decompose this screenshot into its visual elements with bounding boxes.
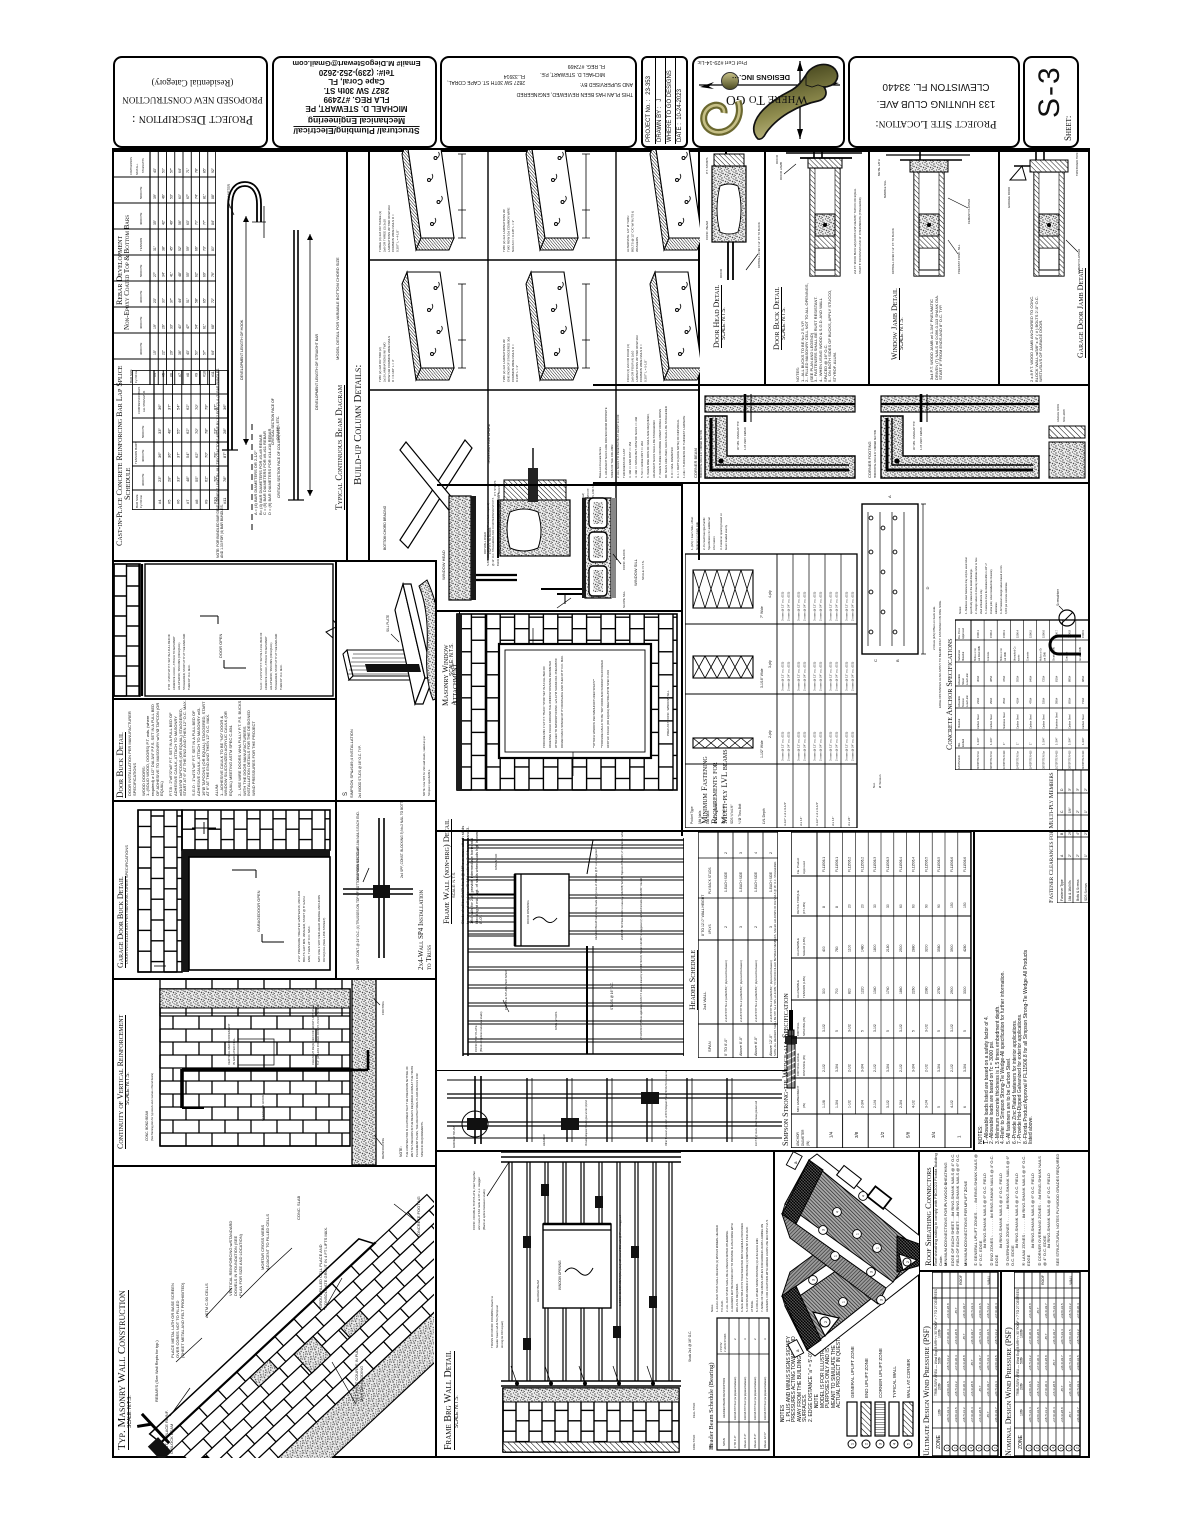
svg-text:Carbon Steel: Carbon Steel xyxy=(1016,714,1019,729)
svg-text:3: 3 xyxy=(739,852,743,854)
svg-text:+19.8/-32.5: +19.8/-32.5 xyxy=(1076,1355,1080,1371)
svg-text:THREE (3) 2x6 OR THREE (3): THREE (3) 2x6 OR THREE (3) xyxy=(378,211,382,252)
svg-text:4: 4 xyxy=(862,1195,866,1197)
svg-text:+16.3/-28.8: +16.3/-28.8 xyxy=(1028,1303,1032,1319)
svg-text:35": 35" xyxy=(153,219,157,225)
svg-text:76": 76" xyxy=(211,271,215,277)
svg-text:3000 PSI: 3000 PSI xyxy=(139,290,143,303)
svg-text:3: 3 xyxy=(878,1442,883,1445)
svg-text:4: 4 xyxy=(754,852,758,854)
svg-text:5: 5 xyxy=(860,1030,864,1032)
svg-text:2-3/4: 2-3/4 xyxy=(860,1100,864,1108)
svg-text:CONC. BOND BEAM: CONC. BOND BEAM xyxy=(145,1110,149,1141)
svg-text:2 rows @ 24" o.c. (ES): 2 rows @ 24" o.c. (ES) xyxy=(787,732,791,761)
svg-text:Min.: Min. xyxy=(957,742,961,747)
svg-text:+36.4/-39.7: +36.4/-39.7 xyxy=(1044,1303,1048,1319)
svg-text:NAILS D = 0.148" L = 3": NAILS D = 0.148" L = 3" xyxy=(511,220,515,252)
svg-text:3.-Fastener spacing based on: 3.-Fastener spacing based on xyxy=(719,513,723,550)
svg-text:42": 42" xyxy=(161,219,165,225)
svg-text:0.148" L = 3": 0.148" L = 3" xyxy=(515,365,519,382)
svg-text:50ft²: 50ft² xyxy=(1020,1356,1024,1364)
svg-text:START 8" FROM ENDS AND 12" INT: START 8" FROM ENDS AND 12" INTERMEDIATE … xyxy=(858,197,862,274)
svg-text:+16.3/-28.8: +16.3/-28.8 xyxy=(970,1381,974,1397)
svg-text:64": 64" xyxy=(211,349,215,355)
svg-text:3-1/2: 3-1/2 xyxy=(950,1024,954,1032)
svg-text:-45.7: -45.7 xyxy=(1068,1411,1072,1418)
svg-text:5: 5 xyxy=(886,1030,890,1032)
svg-text:GIRDER TRUSS: GIRDER TRUSS xyxy=(452,1125,456,1148)
svg-text:15": 15" xyxy=(153,349,157,355)
svg-text:+16.3/-28.8: +16.3/-28.8 xyxy=(962,1355,966,1371)
svg-text:**ATTACH WINDOW PER MANUFACTUR: **ATTACH WINDOW PER MANUFACTURER SPECS** xyxy=(592,678,596,748)
svg-text:a: a xyxy=(795,1349,800,1352)
svg-text:#9: #9 xyxy=(194,373,198,377)
svg-text:820: 820 xyxy=(848,988,852,994)
svg-text:2x6/2x8 SYP No.2 (w/ plywood b: 2x6/2x8 SYP No.2 (w/ plywood between) xyxy=(734,1377,737,1420)
svg-text:mortar joint, when installed i: mortar joint, when installed into masonr… xyxy=(990,569,993,614)
svg-text:#10: #10 xyxy=(203,371,207,377)
svg-text:Notes:: Notes: xyxy=(958,606,962,614)
svg-text:TYPICAL WALL: TYPICAL WALL xyxy=(892,1366,897,1398)
svg-text:1-1/8: 1-1/8 xyxy=(822,1100,826,1108)
svg-text:+17.9/-30.4: +17.9/-30.4 xyxy=(1076,1303,1080,1319)
svg-text:+16.3/-28.8: +16.3/-28.8 xyxy=(1044,1355,1048,1371)
svg-text:20: 20 xyxy=(848,904,852,908)
svg-text:80": 80" xyxy=(211,245,215,251)
svg-text:30" MIN. OVERLAP TYP.: 30" MIN. OVERLAP TYP. xyxy=(736,421,740,450)
svg-text:+18.7/-31.2: +18.7/-31.2 xyxy=(1076,1329,1080,1345)
svg-text:77": 77" xyxy=(203,219,207,225)
svg-text:# JACK STUDS: # JACK STUDS xyxy=(723,1333,727,1352)
svg-text:57": 57" xyxy=(170,167,174,173)
svg-text:48": 48" xyxy=(178,271,182,277)
svg-text:31": 31" xyxy=(153,245,157,251)
svg-text:55": 55" xyxy=(194,476,199,482)
svg-text:150: 150 xyxy=(963,902,967,908)
svg-text:DOOR JAMB: DOOR JAMB xyxy=(779,162,783,180)
svg-text:1-#5 VERT. REBAR: 1-#5 VERT. REBAR xyxy=(919,427,923,450)
svg-text:2: 2 xyxy=(724,852,728,854)
svg-text:COMMON WIRE NAILS D =: COMMON WIRE NAILS D = xyxy=(639,344,643,382)
svg-text:Carbon Steel: Carbon Steel xyxy=(1029,714,1032,729)
svg-text:66": 66" xyxy=(194,245,198,251)
svg-text:1220: 1220 xyxy=(860,986,864,994)
svg-text:3: 3 xyxy=(812,1279,816,1281)
svg-text:2": 2" xyxy=(1076,854,1080,857)
svg-text:2: 2 xyxy=(724,926,728,928)
svg-text:5: 5 xyxy=(906,1442,911,1445)
svg-text:37": 37" xyxy=(170,297,174,303)
svg-text:1/2: 1/2 xyxy=(880,1131,885,1138)
svg-text:46": 46" xyxy=(161,193,165,199)
svg-text:23": 23" xyxy=(153,297,157,303)
svg-text:#7: #7 xyxy=(178,373,182,377)
svg-text:84": 84" xyxy=(211,219,215,225)
svg-text:1: 1 xyxy=(842,1301,846,1303)
svg-text:2x4 SPF CONT. @ 24" O.C. (4) T: 2x4 SPF CONT. @ 24" O.C. (4) TRUSSES ON … xyxy=(356,811,360,970)
svg-text:3 rows @ 12" o.c. (ES): 3 rows @ 12" o.c. (ES) xyxy=(813,662,817,691)
svg-text:Load Limit: Load Limit xyxy=(965,673,969,685)
svg-text:36": 36" xyxy=(178,349,182,355)
svg-text:A: A xyxy=(1060,854,1064,857)
svg-text:2-1/2: 2-1/2 xyxy=(899,1064,903,1072)
svg-text:52": 52" xyxy=(178,245,182,251)
svg-text:(IN): (IN) xyxy=(806,1141,810,1146)
svg-text:1506.1: 1506.1 xyxy=(976,630,980,638)
svg-text:150: 150 xyxy=(950,902,954,908)
svg-text:3 rows @ 12" o.c. (ES): 3 rows @ 12" o.c. (ES) xyxy=(829,662,833,691)
svg-text:71": 71" xyxy=(186,167,190,173)
svg-text:3: 3 xyxy=(1043,1447,1047,1449)
svg-text:ATTACHED TO MASONRY/CONC. w/3-: ATTACHED TO MASONRY/CONC. w/3-16"Ø SHANK… xyxy=(554,658,558,748)
svg-text:information: information xyxy=(712,536,716,550)
svg-text:+20.7/-33.4: +20.7/-33.4 xyxy=(994,1381,998,1397)
svg-text:1-EACH SIDE: 1-EACH SIDE xyxy=(754,872,758,892)
svg-text:3: 3 xyxy=(763,1338,767,1340)
svg-text:2: 2 xyxy=(906,1261,910,1263)
svg-text:2-1/2: 2-1/2 xyxy=(848,1064,852,1072)
svg-text:2x8 OR FOUR (4) 2x10: 2x8 OR FOUR (4) 2x10 xyxy=(630,350,634,382)
svg-text:DESIGNS INC.···: DESIGNS INC.··· xyxy=(732,73,790,82)
svg-text:header beam w/H2.5A (Simpson: header beam w/H2.5A (Simpson xyxy=(495,1304,499,1348)
svg-text:STRENGTHS: STRENGTHS xyxy=(142,158,145,173)
svg-text:ADJACENT TO FILLED CELLS: ADJACENT TO FILLED CELLS xyxy=(265,1214,270,1270)
svg-text:3000 PSI: 3000 PSI xyxy=(139,342,143,355)
svg-text:MAY USE 1"x06" RED-HEAD WEDGE: MAY USE 1"x06" RED-HEAD WEDGE ANCHORS xyxy=(317,895,321,962)
svg-text:640#: 640# xyxy=(1028,675,1032,682)
svg-text:70": 70" xyxy=(194,219,198,225)
svg-text:2": 2" xyxy=(1068,854,1072,857)
svg-text:1-3/4": 1-3/4" xyxy=(1055,738,1059,745)
svg-text:3 rows @ 12" o.c. (ES): 3 rows @ 12" o.c. (ES) xyxy=(845,732,849,761)
svg-text:(See framing plan for typ size: (See framing plan for typ size/s and cou… xyxy=(150,1073,154,1141)
svg-text:COMMON WIRE NAILS D =: COMMON WIRE NAILS D = xyxy=(391,214,395,252)
svg-text:+18.7/-31.2: +18.7/-31.2 xyxy=(1028,1355,1032,1371)
svg-text:+20.7/-33.4: +20.7/-33.4 xyxy=(1076,1381,1080,1397)
svg-text:+16.3/-28.8: +16.3/-28.8 xyxy=(954,1329,958,1345)
svg-text:ADHESIVE CAULK, ATTACH TO MASO: ADHESIVE CAULK, ATTACH TO MASONRY xyxy=(264,636,268,690)
svg-text:OR EQUAL (SEE LINK STREET): OR EQUAL (SEE LINK STREET) xyxy=(322,918,326,962)
svg-text:60: 60 xyxy=(899,904,903,908)
svg-text:710#: 710# xyxy=(1081,697,1085,704)
svg-text:+18.7/-31.2: +18.7/-31.2 xyxy=(994,1329,998,1345)
svg-text:FL11506.5: FL11506.5 xyxy=(937,857,941,872)
svg-text:4: 4 xyxy=(969,1447,973,1449)
svg-text:30: 30 xyxy=(873,904,877,908)
svg-text:+18.7/-31.2: +18.7/-31.2 xyxy=(954,1381,958,1397)
svg-text:Uncracked Co: Uncracked Co xyxy=(1013,646,1016,661)
svg-text:AT BASE.: AT BASE. xyxy=(750,1300,754,1312)
svg-text:SDS ¼"x4-½": SDS ¼"x4-½" xyxy=(730,805,734,824)
svg-text:2x8 OR THREE (3) 2x10: 2x8 OR THREE (3) 2x10 xyxy=(382,219,386,252)
svg-text:Fastener Type: Fastener Type xyxy=(1060,879,1064,901)
svg-text:2: 2 xyxy=(753,1338,757,1340)
svg-text:8: 8 xyxy=(822,906,826,908)
svg-text:END UPLIFT ZONE: END UPLIFT ZONE xyxy=(864,1358,869,1398)
svg-text:COMMON WIRE NAILS D =: COMMON WIRE NAILS D = xyxy=(511,344,515,382)
svg-text:+18.7/-31.2: +18.7/-31.2 xyxy=(962,1407,966,1423)
svg-text:2: 2 xyxy=(1075,1447,1079,1449)
svg-text:DRIVEN NAILS SPACED AT 8" FROM: DRIVEN NAILS SPACED AT 8" FROM EACH END … xyxy=(560,655,564,748)
svg-text:LAMINATIONS W/ TWO ROW 30d: LAMINATIONS W/ TWO ROW 30d xyxy=(635,335,639,382)
svg-text:STAGGERED, START AT 6" AT THE: STAGGERED, START AT 6" AT THE END AND xyxy=(182,634,186,690)
svg-text:3-1/2: 3-1/2 xyxy=(848,1024,852,1032)
svg-text:3-1/2: 3-1/2 xyxy=(822,1024,826,1032)
svg-text:5: 5 xyxy=(835,1030,839,1032)
svg-text:410#: 410# xyxy=(1015,697,1019,704)
svg-text:60: 60 xyxy=(912,904,916,908)
svg-text:3580: 3580 xyxy=(937,944,941,952)
svg-text:HORIZONTAL SPLICE AT CORNER SE: HORIZONTAL SPLICE AT CORNER SECTION xyxy=(874,430,877,478)
svg-text:2780: 2780 xyxy=(937,986,941,994)
svg-text:54": 54" xyxy=(176,404,181,410)
svg-text:2 Rows (ES) Offset on back sid: 2 Rows (ES) Offset on back side. xyxy=(932,606,936,650)
svg-text:+18.7/-31.2: +18.7/-31.2 xyxy=(1068,1303,1072,1319)
svg-text:2-2x8 SYP No.2 (w/&#189;" plyw: 2-2x8 SYP No.2 (w/&#189;" plywood betwee… xyxy=(739,960,743,1022)
svg-text:S.G.D : 1"x4"/1"x6" P.T. SET I: S.G.D : 1"x4"/1"x6" P.T. SET IN A FULL B… xyxy=(259,632,263,690)
svg-text:out CMU: out CMU xyxy=(1004,652,1007,661)
svg-text:#9: #9 xyxy=(203,499,208,504)
svg-text:KING STUDS: KING STUDS xyxy=(554,1012,558,1030)
svg-text:STUDS @ 16" O.C.: STUDS @ 16" O.C. xyxy=(610,982,614,1010)
svg-text:THE CONTRACTOR IS CAUTIONED TH: THE CONTRACTOR IS CAUTIONED THAT THE PRE… xyxy=(405,1066,409,1157)
svg-text:8: 8 xyxy=(835,906,839,908)
svg-text:MARBLE SILL: MARBLE SILL xyxy=(883,180,887,198)
svg-text:fasteners on back side: fasteners on back side xyxy=(695,522,699,550)
svg-text:SPAN: SPAN xyxy=(707,1041,712,1052)
svg-text:ROW 10d COMMON WIRE NAILS: ROW 10d COMMON WIRE NAILS xyxy=(387,336,391,382)
svg-text:2 rows @ 24" o.c. (ES): 2 rows @ 24" o.c. (ES) xyxy=(803,732,807,761)
svg-text:+19.8/-32.5: +19.8/-32.5 xyxy=(1036,1407,1040,1423)
svg-text:(Block all splices between stu: (Block all splices between studs) xyxy=(479,1012,483,1052)
svg-text:3 rows @ 12" o.c. (ES): 3 rows @ 12" o.c. (ES) xyxy=(829,592,833,621)
svg-text:CRITICAL: CRITICAL xyxy=(796,1022,800,1036)
svg-text:BOTTOM CHORD BRACING: BOTTOM CHORD BRACING xyxy=(383,505,387,550)
svg-text:3/8: 3/8 xyxy=(854,1131,859,1138)
svg-text:3-1/2" ≤ d ≤ 9-1/4": 3-1/2" ≤ d ≤ 9-1/4" xyxy=(783,802,787,826)
svg-text:16d Nails: 16d Nails xyxy=(706,810,710,824)
svg-text:FOUR (4) 2x6 OR FOUR (4): FOUR (4) 2x6 OR FOUR (4) xyxy=(626,344,630,382)
svg-text:33": 33" xyxy=(157,428,162,434)
svg-text:CEMENT PLASTER: CEMENT PLASTER xyxy=(1077,249,1081,274)
svg-text:-45.7: -45.7 xyxy=(962,1333,966,1340)
svg-text:WALL: WALL xyxy=(1069,1275,1073,1284)
svg-text:2 rows @ 24" o.c. (ES): 2 rows @ 24" o.c. (ES) xyxy=(787,662,791,691)
svg-text:MIN. EMBEDMENT: MIN. EMBEDMENT xyxy=(796,1085,800,1112)
svg-text:+17.9/-30.4: +17.9/-30.4 xyxy=(962,1381,966,1397)
svg-text:2x10 LAMINATIONS W/ TWO: 2x10 LAMINATIONS W/ TWO xyxy=(382,342,386,382)
svg-text:3 rows @ 12" o.c. (ES): 3 rows @ 12" o.c. (ES) xyxy=(781,732,785,761)
svg-text:5000 PSI: 5000 PSI xyxy=(141,425,145,438)
svg-text:5000 PSI: 5000 PSI xyxy=(139,264,143,277)
svg-text:SILL PLATE: SILL PLATE xyxy=(386,615,390,632)
svg-text:39": 39" xyxy=(153,193,157,199)
svg-text:OF NAILS ARE USED, NAILS SHALL: OF NAILS ARE USED, NAILS SHALL BE STAGGE… xyxy=(664,406,668,478)
svg-text:2: 2 xyxy=(733,1338,737,1340)
svg-text:LAMINATIONS W/ TWO ROW 30d: LAMINATIONS W/ TWO ROW 30d xyxy=(387,205,391,252)
svg-text:CLEANOUT REQUIRED FOR GROUT LI: CLEANOUT REQUIRED FOR GROUT LIFTS OVER xyxy=(311,1004,315,1065)
svg-text:2-2x8 SYP No.2 (w/&#189;" plyw: 2-2x8 SYP No.2 (w/&#189;" plywood betwee… xyxy=(769,960,773,1022)
svg-text:2x6/2x8 SYP No.2 (w/ plywood b: 2x6/2x8 SYP No.2 (w/ plywood between) xyxy=(744,1377,747,1420)
svg-text:+17.9/-30.4: +17.9/-30.4 xyxy=(946,1329,950,1345)
svg-text:7" Wide: 7" Wide xyxy=(760,606,764,618)
svg-text:shell embedment only.: shell embedment only. xyxy=(980,589,983,614)
svg-text:2-1/2: 2-1/2 xyxy=(924,1064,928,1072)
svg-text:54": 54" xyxy=(185,452,190,458)
svg-text:¾"Ø Thru-Bolt: ¾"Ø Thru-Bolt xyxy=(738,804,742,824)
svg-text:N-5/8" CONCRETE SCREWS (1/4" m: N-5/8" CONCRETE SCREWS (1/4" min, hole r… xyxy=(486,503,490,566)
svg-text:50": 50" xyxy=(161,167,165,173)
svg-text:Stainless Steel: Stainless Steel xyxy=(1056,712,1059,729)
svg-text:+17.9/-30.4: +17.9/-30.4 xyxy=(994,1303,998,1319)
svg-text:4: 4 xyxy=(836,1211,840,1213)
svg-text:COMPRESSION: COMPRESSION xyxy=(130,157,133,175)
svg-text:3 rows @ 12" o.c. (ES): 3 rows @ 12" o.c. (ES) xyxy=(781,592,785,621)
svg-text:2x6/8/10 HEADER BEAM (See plan: 2x6/8/10 HEADER BEAM (See plan) w/2 rows… xyxy=(618,1215,622,1306)
svg-text:+16.3/-28.8: +16.3/-28.8 xyxy=(1052,1381,1056,1397)
svg-text:CELL STUD: CELL STUD xyxy=(692,1403,696,1418)
svg-text:3/4"ØTITEN 410: 3/4"ØTITEN 410 xyxy=(1082,750,1085,769)
svg-text:TRUSS BOTTOM CHORD: TRUSS BOTTOM CHORD xyxy=(487,423,491,464)
svg-text:0.207" L = 4-1/2": 0.207" L = 4-1/2" xyxy=(396,230,400,252)
svg-text:REBAR'S (See Wall Repts for ty: REBAR'S (See Wall Repts for typ.) xyxy=(154,1340,159,1402)
svg-text:2-3/4: 2-3/4 xyxy=(899,1100,903,1108)
svg-text:PLAN FOR SIZE AND LOCATION): PLAN FOR SIZE AND LOCATION) xyxy=(238,1233,243,1296)
svg-text:1-3/4: 1-3/4 xyxy=(835,1100,839,1108)
svg-text:55": 55" xyxy=(186,271,190,277)
svg-text:650#: 650# xyxy=(1068,697,1072,704)
svg-text:Prof Cert #29-14-Lic: Prof Cert #29-14-Lic xyxy=(697,59,747,65)
svg-text:2: 2 xyxy=(769,852,773,854)
svg-text:36": 36" xyxy=(157,452,162,458)
svg-text:3 rows @ 12" o.c. (ES): 3 rows @ 12" o.c. (ES) xyxy=(797,592,801,621)
svg-text:THICKNESS OF LAST: THICKNESS OF LAST xyxy=(622,448,626,478)
svg-text:4.-NAIL MULTIPLE PLYS TOGETHER: 4.-NAIL MULTIPLE PLYS TOGETHER PER NDS S… xyxy=(740,1222,744,1312)
svg-text:1/2"ØTITEN 410: 1/2"ØTITEN 410 xyxy=(1056,750,1059,769)
svg-text:62": 62" xyxy=(185,404,190,410)
svg-text:2: 2 xyxy=(823,1320,828,1323)
svg-text:1: 1 xyxy=(945,1447,949,1449)
svg-text:WINDOW HEAD: WINDOW HEAD xyxy=(441,550,446,580)
svg-text:4-ply: 4-ply xyxy=(768,590,772,598)
svg-text:Bolts & Screws: Bolts & Screws xyxy=(1076,879,1080,901)
svg-text:4000 PSI: 4000 PSI xyxy=(139,212,143,225)
svg-text:GARAGE DOOR: GARAGE DOOR xyxy=(1057,404,1060,422)
svg-text:-45.7: -45.7 xyxy=(970,1359,974,1366)
svg-text:Pocket Type: Pocket Type xyxy=(690,806,694,824)
svg-text:**PROVIDE CAULK TO BE "NO" DOO: **PROVIDE CAULK TO BE "NO" DOOR AND WIND… xyxy=(600,660,604,748)
svg-text:2-1/2: 2-1/2 xyxy=(822,1064,826,1072)
svg-text:3: 3 xyxy=(739,926,743,928)
svg-text:43": 43" xyxy=(186,349,190,355)
svg-text:Above 12'-0": Above 12'-0" xyxy=(763,1432,767,1448)
svg-text:Fy=60 ksi: Fy=60 ksi xyxy=(139,495,143,508)
svg-text:20: 20 xyxy=(860,904,864,908)
svg-text:1: 1 xyxy=(856,1233,860,1235)
svg-text:+36.4/-39.7: +36.4/-39.7 xyxy=(1068,1381,1072,1397)
svg-text:+19.8/-32.5: +19.8/-32.5 xyxy=(978,1303,982,1319)
svg-text:(FT-LBS): (FT-LBS) xyxy=(802,902,806,914)
svg-text:ANCHOR: ANCHOR xyxy=(796,1131,800,1146)
svg-text:67": 67" xyxy=(186,193,190,199)
svg-text:ASTM C-90 CELLS: ASTM C-90 CELLS xyxy=(204,1283,209,1318)
svg-text:2½": 2½" xyxy=(1068,829,1072,835)
svg-text:Hollow or Gr: Hollow or Gr xyxy=(974,648,977,661)
svg-text:d ≥ 24": d ≥ 24" xyxy=(847,817,851,826)
svg-text:2-1/2: 2-1/2 xyxy=(950,1064,954,1072)
svg-text:Embed: Embed xyxy=(961,738,965,747)
svg-text:ALLOWABLE: ALLOWABLE xyxy=(796,980,800,998)
svg-text:70": 70" xyxy=(194,404,199,410)
svg-text:53": 53" xyxy=(170,193,174,199)
svg-text:1.-Stainless steel fasteners m: 1.-Stainless steel fasteners may only be… xyxy=(965,556,968,614)
svg-text:810#: 810# xyxy=(1055,675,1059,682)
svg-text:2-1/4: 2-1/4 xyxy=(873,1100,877,1108)
svg-text:CRITICAL EDGE: CRITICAL EDGE xyxy=(796,1053,800,1076)
svg-text:TRUSS ON ROOF FRAMING Attach t: TRUSS ON ROOF FRAMING Attach to xyxy=(490,1295,494,1348)
svg-text:41": 41" xyxy=(170,271,174,277)
svg-text:PLACEMENT PLANS, THE ARCHITECT: PLACEMENT PLANS, THE ARCHITECTURAL PLANS… xyxy=(415,1073,419,1157)
svg-text:Fla. Product: Fla. Product xyxy=(796,858,800,874)
svg-text:4280: 4280 xyxy=(963,944,967,952)
svg-text:1": 1" xyxy=(1002,742,1006,745)
svg-text:DEVELOPMENT LENGTH OF HOOK: DEVELOPMENT LENGTH OF HOOK xyxy=(240,319,244,380)
svg-text:70": 70" xyxy=(203,452,208,458)
svg-text:Hollow or Gr: Hollow or Gr xyxy=(1000,648,1003,661)
svg-text:KING STUD: KING STUD xyxy=(692,1435,696,1450)
svg-text:(Back at splice between studs): (Back at splice between studs) xyxy=(482,1189,486,1230)
svg-text:FL11506.2: FL11506.2 xyxy=(848,857,852,872)
svg-text:7. WHEN THREE OR MORE LONGITU: 7. WHEN THREE OR MORE LONGITUDINAL ROWS xyxy=(658,409,662,478)
svg-text:1-3/4": 1-3/4" xyxy=(976,738,980,745)
svg-text:SIMPSON SP&#189;4 INSTALLATION: SIMPSON SP&#189;4 INSTALLATION xyxy=(349,729,354,798)
svg-text:SPACING (IN): SPACING (IN) xyxy=(802,1017,806,1036)
svg-text:5000 PSI: 5000 PSI xyxy=(139,186,143,199)
svg-text:Fla. Prod.: Fla. Prod. xyxy=(957,627,961,639)
svg-text:WALL AT CORNER: WALL AT CORNER xyxy=(906,1358,911,1398)
svg-text:DIAMETER: DIAMETER xyxy=(801,1129,805,1146)
svg-text:CONC. BEAM: CONC. BEAM xyxy=(705,220,709,240)
svg-text:1. ADJACENT NAILS ARE DRIVEN: 1. ADJACENT NAILS ARE DRIVEN FROM OPPOSI… xyxy=(604,407,608,478)
svg-text:FOOTING: FOOTING xyxy=(381,1001,385,1015)
svg-text:19": 19" xyxy=(153,323,157,329)
svg-text:+36.4/-39.7: +36.4/-39.7 xyxy=(1052,1329,1056,1345)
svg-text:1: 1 xyxy=(957,1135,962,1138)
svg-text:6. WHEN ONE ROW OF NAILS ARE: 6. WHEN ONE ROW OF NAILS ARE REQUIRED, xyxy=(646,413,650,478)
svg-text:SIMPSON STC CLIP: SIMPSON STC CLIP xyxy=(356,846,360,880)
svg-text:d ≥ 14": d ≥ 14" xyxy=(831,817,835,826)
svg-text:strong tie OR equal): strong tie OR equal) xyxy=(500,1321,504,1348)
svg-text:BUCK WOOD SET w/GOOD NAIL @ HE: BUCK WOOD SET w/GOOD NAIL @ HEAD, JAMBS,… xyxy=(496,492,500,566)
svg-text:1-3/4": 1-3/4" xyxy=(989,738,993,745)
svg-text:#7: #7 xyxy=(185,499,190,504)
svg-text:substrates.: substrates. xyxy=(995,601,998,614)
svg-text:(SHEET METAL AND FELT PROHIBIT: (SHEET METAL AND FELT PROHIBITED) xyxy=(180,1282,185,1358)
svg-text:Header Beam Schedule (Bearing): Header Beam Schedule (Bearing) xyxy=(708,1362,715,1450)
svg-text:700: 700 xyxy=(835,988,839,994)
svg-text:1: 1 xyxy=(985,1447,989,1449)
svg-text:1800: 1800 xyxy=(873,944,877,952)
svg-text:+20.7/-33.4: +20.7/-33.4 xyxy=(946,1407,950,1423)
svg-text:1½": 1½" xyxy=(1068,807,1072,813)
svg-text:+17.9/-30.4: +17.9/-30.4 xyxy=(954,1355,958,1371)
svg-text:BOLTS @ 12" C/C W/ NUTS &: BOLTS @ 12" C/C W/ NUTS & xyxy=(630,211,634,252)
svg-text:FL11506.3: FL11506.3 xyxy=(873,857,877,872)
svg-text:3 rows @ 12" o.c. (ES): 3 rows @ 12" o.c. (ES) xyxy=(829,732,833,761)
svg-text:0 TO 6'-0": 0 TO 6'-0" xyxy=(733,1436,737,1448)
svg-text:Substrate: Substrate xyxy=(957,649,961,661)
svg-text:+17.9/-30.4: +17.9/-30.4 xyxy=(1036,1355,1040,1371)
